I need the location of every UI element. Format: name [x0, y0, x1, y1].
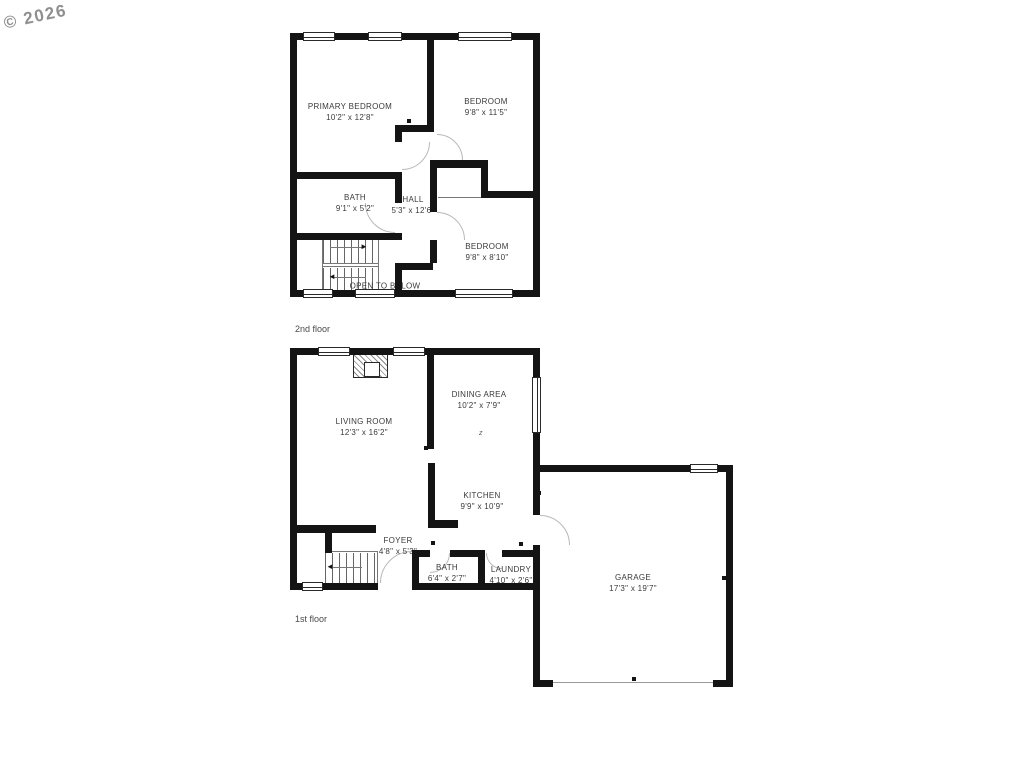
room-label-bedroom-lower: BEDROOM 9'8" x 8'10" [465, 242, 508, 262]
wall [430, 240, 437, 263]
room-label-primary-bedroom: PRIMARY BEDROOM 10'2" x 12'8" [308, 102, 392, 122]
wall [478, 550, 485, 590]
wall [488, 191, 537, 198]
stair-direction-line [332, 567, 362, 568]
room-name: BEDROOM [464, 97, 507, 106]
room-name: PRIMARY BEDROOM [308, 102, 392, 111]
wall [502, 550, 537, 557]
dimension-tick [344, 585, 348, 589]
room-name: GARAGE [609, 573, 657, 582]
dimension-tick [632, 468, 636, 472]
room-dimensions: 12'3" x 16'2" [336, 428, 393, 437]
wall [395, 263, 402, 297]
wall [412, 583, 540, 590]
dimension-tick [722, 576, 726, 580]
stair-direction-line [334, 277, 366, 278]
room-dimensions: 17'3" x 19'7" [609, 584, 657, 593]
dimension-tick [534, 103, 538, 107]
dimension-tick [349, 35, 353, 39]
garage-door-line [553, 682, 713, 683]
window [393, 347, 425, 356]
room-label-dining-area: DINING AREA 10'2" x 7'9" [452, 390, 507, 410]
room-dimensions: 9'1" x 5'2" [336, 204, 374, 213]
stair-edge-line [377, 551, 378, 586]
stair-direction-line [330, 247, 362, 248]
wall [540, 465, 690, 472]
floor-plan-page: © 2026 [0, 0, 1024, 768]
wall [427, 355, 434, 449]
room-label-bath-1f: BATH 6'4" x 2'7" [428, 563, 466, 583]
wall [535, 680, 553, 687]
stair-landing-line [322, 266, 378, 267]
wall [293, 233, 402, 240]
room-dimensions: 9'8" x 11'5" [464, 108, 507, 117]
dimension-tick [424, 446, 428, 450]
room-label-bath-2f: BATH 9'1" x 5'2" [336, 193, 374, 213]
wall [481, 160, 488, 198]
dimension-tick [407, 119, 411, 123]
wall [533, 433, 540, 515]
window [303, 32, 335, 41]
window [318, 347, 350, 356]
dimension-tick [292, 82, 296, 86]
switch-symbol-icon: z [479, 430, 483, 437]
dimension-tick [344, 174, 348, 178]
wall [412, 550, 430, 557]
room-dimensions: 5'3" x 12'6" [391, 206, 434, 215]
wall [437, 160, 485, 168]
floor-label-1st: 1st floor [295, 614, 327, 624]
room-dimensions: 9'9" x 10'9" [460, 502, 503, 511]
wall [290, 348, 297, 590]
staircase [323, 238, 378, 263]
wall [325, 533, 332, 553]
window [302, 582, 323, 591]
room-name: DINING AREA [452, 390, 507, 399]
dimension-tick [292, 520, 296, 524]
wall [428, 520, 458, 528]
room-dimensions: 10'2" x 12'8" [308, 113, 392, 122]
floor-label-2nd: 2nd floor [295, 324, 330, 334]
dimension-tick [632, 677, 636, 681]
room-name: LAUNDRY [489, 565, 532, 574]
wall [395, 172, 402, 203]
door-swing-arc [409, 212, 465, 268]
room-name: FOYER [379, 536, 417, 545]
door-swing-arc [374, 114, 430, 170]
window [458, 32, 512, 41]
dimension-tick [431, 541, 435, 545]
stair-landing-line [322, 263, 378, 264]
window [690, 464, 718, 473]
room-dimensions: 9'8" x 8'10" [465, 253, 508, 262]
room-label-garage: GARAGE 17'3" x 19'7" [609, 573, 657, 593]
wall [293, 525, 376, 533]
wall [533, 348, 540, 377]
dimension-tick [534, 245, 538, 249]
stair-edge-line [325, 551, 377, 552]
room-name: BATH [336, 193, 374, 202]
wall [533, 545, 540, 687]
stair-arrow-icon: ◄ [328, 273, 336, 281]
wall [395, 125, 402, 142]
wall [427, 33, 434, 127]
room-name: LIVING ROOM [336, 417, 393, 426]
window [455, 289, 513, 298]
wall [290, 33, 297, 297]
wall [713, 680, 733, 687]
dimension-tick [519, 542, 523, 546]
copyright-watermark: © 2026 [2, 1, 69, 34]
window [368, 32, 402, 41]
stair-arrow-icon: ► [360, 243, 368, 251]
room-name: BATH [428, 563, 466, 572]
room-dimensions: 6'4" x 2'7" [428, 574, 466, 583]
room-dimensions: 10'2" x 7'9" [452, 401, 507, 410]
wall [428, 463, 435, 528]
fireplace-firebox [364, 362, 380, 377]
room-label-kitchen: KITCHEN 9'9" x 10'9" [460, 491, 503, 511]
room-name: KITCHEN [460, 491, 503, 500]
room-label-laundry: LAUNDRY 4'10" x 2'6" [489, 565, 532, 585]
window [355, 289, 395, 298]
wall [726, 465, 733, 687]
wall [430, 160, 437, 212]
wall [533, 33, 540, 297]
window [303, 289, 333, 298]
dimension-tick [537, 491, 541, 495]
stair-arrow-icon: ◄ [326, 563, 334, 571]
dimension-tick [344, 291, 348, 295]
room-name: BEDROOM [465, 242, 508, 251]
room-label-bedroom-upper: BEDROOM 9'8" x 11'5" [464, 97, 507, 117]
room-label-living-room: LIVING ROOM 12'3" x 16'2" [336, 417, 393, 437]
dimension-tick [292, 183, 296, 187]
window [532, 377, 541, 433]
